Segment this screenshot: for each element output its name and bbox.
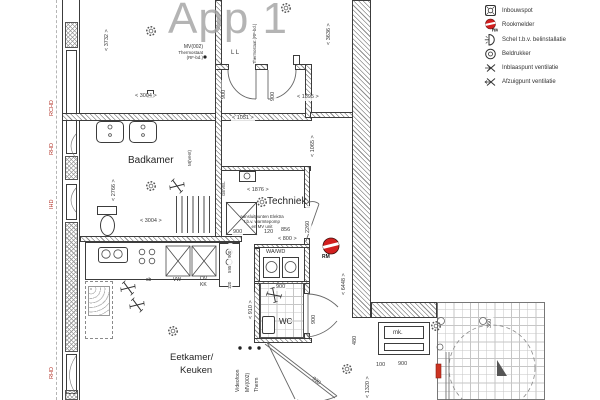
window-code: RHD [50, 357, 56, 379]
dimension-label: < 1051 > [231, 116, 255, 122]
dimension-label: < 2766 > [112, 168, 118, 202]
dimension-label: 100 [375, 363, 386, 369]
dimension-label: 2260 [306, 206, 312, 234]
dimension-label: 900 [222, 80, 228, 100]
dimension-label: 595 [228, 258, 232, 274]
window-code: RCHD [50, 92, 56, 116]
dimension-label: 480 [353, 328, 359, 346]
extract-vent-icon [484, 75, 498, 89]
ventilation-point-icon [258, 198, 266, 206]
legend-label: Inbouwspot [502, 8, 533, 14]
dimension-label: 900 [271, 82, 277, 102]
dimension-label: 360 [488, 311, 494, 329]
dimension-label: 900 [397, 362, 408, 368]
dimension-label: < 800 > [277, 237, 298, 243]
dimension-label: 120 [228, 274, 232, 290]
legend-label: Rookmelder [502, 22, 534, 28]
legend-label: Beldrukker [502, 51, 531, 57]
therm-label: Therm [255, 352, 260, 392]
dimension-label: 120 [263, 230, 274, 236]
mv002-bottom-label: MV(002) [246, 352, 251, 392]
legend: Inbouwspot RM Rookmelder Schel t.b.v. be… [484, 2, 598, 94]
gevel-label: GEVEL [222, 168, 227, 196]
rm-label: RM [492, 27, 498, 32]
inbouwspot-icon [484, 4, 498, 18]
dimension-label: < 910 > [249, 292, 255, 320]
dimension-label: < 6448 > [342, 262, 348, 296]
vent-cross-icon [168, 178, 185, 194]
room-label-badkamer: Badkamer [128, 155, 174, 167]
ventilation-point-icon [432, 322, 440, 330]
smoke-detector-symbol [323, 238, 339, 254]
window-code: IHD [50, 187, 56, 209]
bell-push-icon [484, 47, 498, 61]
dimension-label: < 3004 > [139, 219, 163, 225]
window-code: RHD [50, 133, 56, 155]
room-label-wawd: WA/WD [266, 249, 285, 255]
supply-vent-icon [484, 61, 498, 75]
dimension-label: 900 [312, 305, 318, 325]
ventilation-point-icon [147, 182, 155, 190]
vw-label: VW [173, 278, 181, 284]
videofoon-label: Videofoon [236, 352, 241, 392]
doorbell-icon [484, 33, 498, 47]
dimension-label: < 1320 > [366, 369, 372, 399]
dimension-label: 900 [228, 243, 232, 259]
room-label-techniek: Techniek [267, 196, 306, 208]
legend-item-afzuigpunt: Afzuigpunt ventilatie [484, 75, 556, 88]
rookmelder-icon: RM [484, 18, 498, 32]
dimension-label: < 3004 > [134, 94, 158, 100]
dimension-label: < 1065 > [311, 126, 317, 158]
floor-plan-screenshot: RCHD RHD IHD RHD mk. [0, 0, 600, 400]
vent-cross-icon [128, 297, 145, 313]
ventilation-point-icon [169, 327, 177, 335]
dimension-label: < 1895 > [296, 95, 320, 101]
dimension-label: 900 [275, 285, 286, 291]
room-label-eetkamer: Eetkamer/ [170, 353, 213, 364]
legend-label: Afzuigpunt ventilatie [502, 79, 556, 85]
dimension-label: < 3732 > [105, 18, 111, 52]
legend-item-inblaaspunt: Inblaaspunt ventilatie [484, 61, 558, 74]
sb-label: sb [146, 278, 151, 284]
legend-item-rookmelder: RM Rookmelder [484, 18, 534, 31]
legend-item-beldrukker: Beldrukker [484, 47, 531, 60]
hallway-details [436, 318, 535, 400]
window-swings [70, 134, 77, 394]
mvent-label: M(Vent) [187, 136, 192, 166]
rm-label: RM [322, 254, 330, 260]
ventilation-point-icon [147, 27, 155, 35]
legend-label: Inblaaspunt ventilatie [502, 65, 558, 71]
legend-label: Schel t.b.v. belinstallatie [502, 37, 566, 43]
ventilation-point-icon [343, 365, 351, 373]
dimension-label: 856 [280, 228, 291, 234]
meterkast-label: mk. [393, 330, 403, 337]
legend-item-schel: Schel t.b.v. belinstallatie [484, 33, 566, 46]
room-label-wc: WC [279, 317, 292, 326]
kk-label: KK [200, 283, 207, 289]
vent-cross-icon [119, 280, 136, 296]
dimension-label: < 3636 > [327, 12, 333, 46]
room-label-keuken: Keuken [180, 366, 212, 377]
rf-code-label: (RF-bd.) [175, 56, 203, 61]
dimension-label: < 1876 > [246, 188, 270, 194]
ll-label: L L [231, 50, 239, 57]
apartment-title: App 1 [168, 0, 288, 44]
dimension-label: 900 [232, 230, 243, 236]
legend-item-inbouwspot: Inbouwspot [484, 4, 533, 17]
